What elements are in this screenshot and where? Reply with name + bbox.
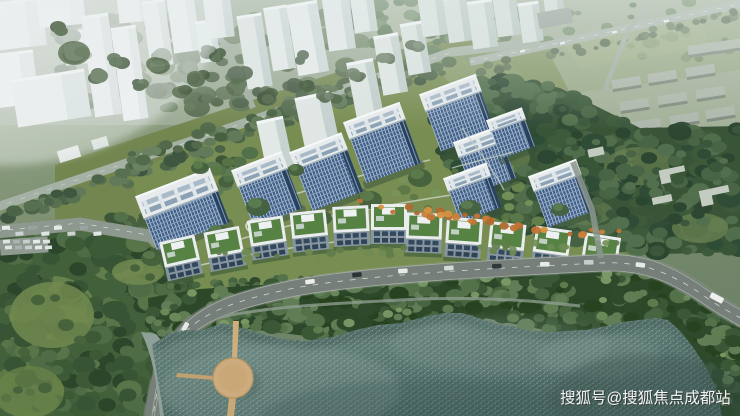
- svg-text:搜狐号@搜狐焦点成都站: 搜狐号@搜狐焦点成都站: [560, 389, 731, 407]
